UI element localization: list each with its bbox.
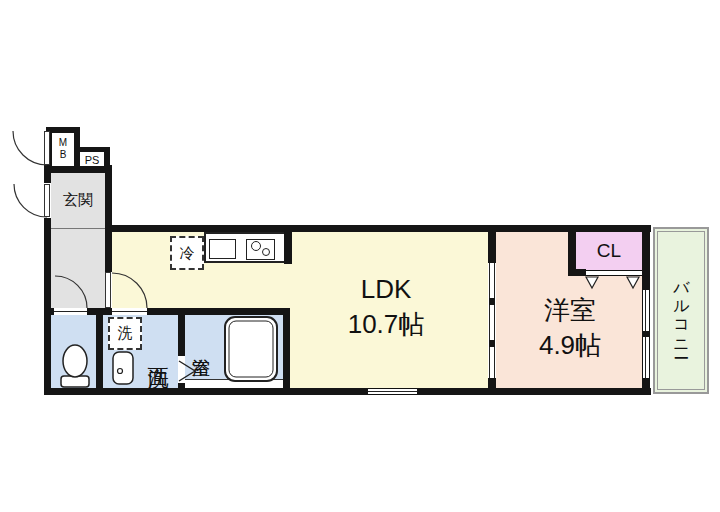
wall-partition-bottom [488,378,496,395]
wall-bathroom-right [283,308,290,395]
entrance-door-leaf [44,184,50,217]
ldk-size: 10.7帖 [348,307,425,342]
floor-plan: 冷 洗 [0,0,720,512]
entrance-label: 玄関 [51,190,105,210]
meter-box-label: MB [52,132,74,166]
washroom-label: 洗面 [142,322,174,380]
ldk-door-leaf [105,272,111,308]
closet-label: CL [576,232,642,270]
sliding-door-line-1 [489,263,490,378]
wall-entrance-top [44,166,112,173]
sliding-door-line-2 [494,263,495,378]
meter-box-door-arc [13,131,47,165]
ldk-label: LDK 10.7帖 [320,272,452,342]
hallway [51,229,105,308]
wall-kitchen-stub [284,225,292,264]
entrance-door-arc [14,184,47,217]
window-ldk-south-line [368,391,417,392]
stove-burner-small-icon [262,248,270,256]
stove-burner-large-icon [251,241,261,251]
window-balcony-tick [642,331,650,337]
meter-box-door-leaf [44,131,50,165]
balcony-label: バルコニー [655,240,707,380]
washing-machine-box: 洗 [108,317,142,350]
closet-door-track [586,270,642,276]
wall-toilet-washroom [96,308,103,395]
ldk-name: LDK [361,272,412,307]
bathroom-doorway [178,356,185,383]
washroom-doorway-line [112,311,147,312]
toilet-doorway-line [54,311,87,312]
refrigerator-label: 冷 [180,244,195,263]
kitchen-sink [209,239,236,259]
toilet-room [51,315,96,388]
refrigerator-box: 冷 [170,236,204,270]
western-room-label: 洋室 4.9帖 [500,293,640,363]
wall-hall-ldk [105,165,112,272]
western-room-size: 4.9帖 [539,328,601,363]
pipe-space-label: PS [80,152,104,167]
bathroom-sill [185,379,283,388]
sliding-door-tick-1 [489,298,495,305]
sliding-door-tick-2 [489,340,495,347]
wall-partition-top [488,225,496,263]
wall-bottom [44,388,651,395]
washing-machine-label: 洗 [118,324,133,343]
wall-closet-stub [568,269,586,276]
stove [246,239,275,260]
western-room-name: 洋室 [544,293,596,328]
bathroom-label: 浴室 [189,318,213,370]
